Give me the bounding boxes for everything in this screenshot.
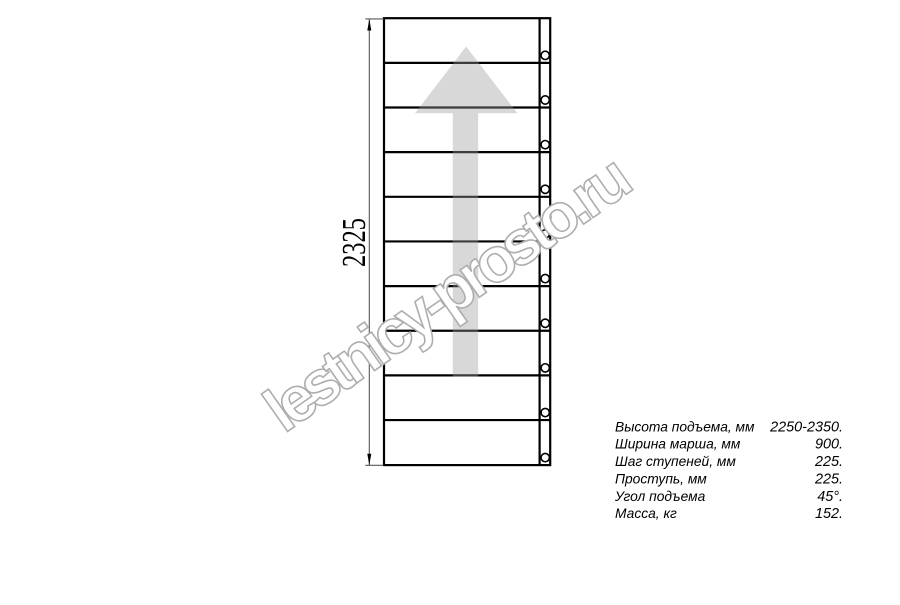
svg-text:225.: 225. xyxy=(814,454,843,470)
svg-text:152.: 152. xyxy=(815,506,843,522)
svg-text:900.: 900. xyxy=(815,437,843,453)
svg-text:Масса, кг: Масса, кг xyxy=(615,506,677,521)
svg-text:2250-2350.: 2250-2350. xyxy=(769,419,843,435)
svg-text:Угол подъема: Угол подъема xyxy=(614,489,706,504)
svg-text:225.: 225. xyxy=(814,471,843,487)
svg-text:Шаг ступеней, мм: Шаг ступеней, мм xyxy=(615,454,736,469)
svg-text:2325: 2325 xyxy=(336,218,373,267)
svg-text:45°.: 45°. xyxy=(817,489,843,505)
svg-text:Высота подъема, мм: Высота подъема, мм xyxy=(615,419,755,434)
svg-text:Проступь, мм: Проступь, мм xyxy=(615,471,707,486)
svg-text:Ширина марша, мм: Ширина марша, мм xyxy=(615,437,741,452)
